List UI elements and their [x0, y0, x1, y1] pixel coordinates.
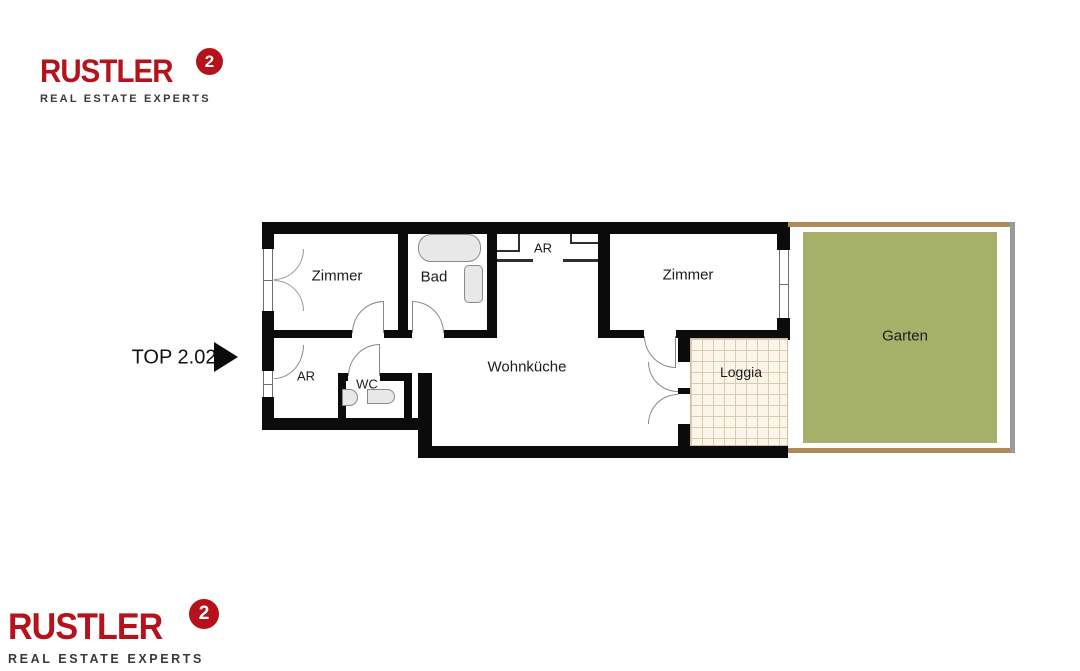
room-label-zimmer-left: Zimmer: [312, 268, 363, 285]
wall: [384, 330, 412, 338]
entrance-door-panel: [263, 371, 273, 397]
door-arc: [348, 344, 380, 376]
door-arc: [648, 362, 678, 392]
garden-border-bottom: [788, 448, 1014, 453]
wall: [274, 330, 352, 338]
logo-wordmark: RUSTLER: [8, 608, 162, 645]
wall: [598, 330, 644, 338]
room-label-garten: Garten: [882, 328, 928, 345]
wall: [497, 259, 533, 262]
garden-border-right: [1010, 222, 1015, 453]
wall: [404, 373, 412, 418]
door-arc: [352, 301, 384, 333]
room-label-ar-bottom: AR: [297, 369, 315, 384]
door-arc: [648, 394, 678, 424]
room-label-wohnkueche: Wohnküche: [488, 359, 567, 376]
wall: [262, 418, 420, 430]
wall: [678, 338, 690, 362]
page: { "branding": { "logo_text": "RUSTLER", …: [0, 0, 1080, 671]
wall: [563, 259, 598, 262]
window: [263, 249, 273, 311]
window-arc: [274, 249, 304, 280]
wall: [398, 234, 408, 333]
bath-cabinet-fixture: [464, 265, 483, 303]
wall: [678, 424, 690, 446]
room-label-loggia: Loggia: [720, 364, 762, 380]
window-arc: [274, 280, 304, 311]
toilet-fixture: [342, 389, 358, 406]
window: [779, 250, 789, 318]
wall: [570, 242, 598, 244]
room-label-bad: Bad: [421, 269, 448, 286]
wall: [262, 222, 274, 249]
wall: [262, 222, 790, 234]
bathtub-fixture: [418, 234, 481, 262]
wall: [598, 234, 610, 333]
floor-plan: Zimmer Bad AR Zimmer AR WC Wohnküche Log…: [0, 0, 1080, 671]
wall: [338, 373, 348, 381]
room-label-ar-top: AR: [534, 241, 552, 256]
logo-tagline: REAL ESTATE EXPERTS: [8, 653, 204, 666]
wall: [487, 234, 497, 338]
loggia-floor: [690, 338, 788, 446]
wall: [676, 330, 790, 338]
garden-border-top: [788, 222, 1014, 227]
logo-squared-icon: 2: [189, 599, 219, 629]
door-arc: [412, 301, 444, 333]
room-label-zimmer-right: Zimmer: [663, 267, 714, 284]
rustler-logo-bottom: RUSTLER 2 REAL ESTATE EXPERTS: [8, 608, 204, 666]
wall: [262, 311, 274, 371]
wall: [678, 388, 690, 394]
room-label-wc: WC: [356, 377, 378, 392]
wall: [497, 250, 520, 252]
wall: [418, 446, 788, 458]
